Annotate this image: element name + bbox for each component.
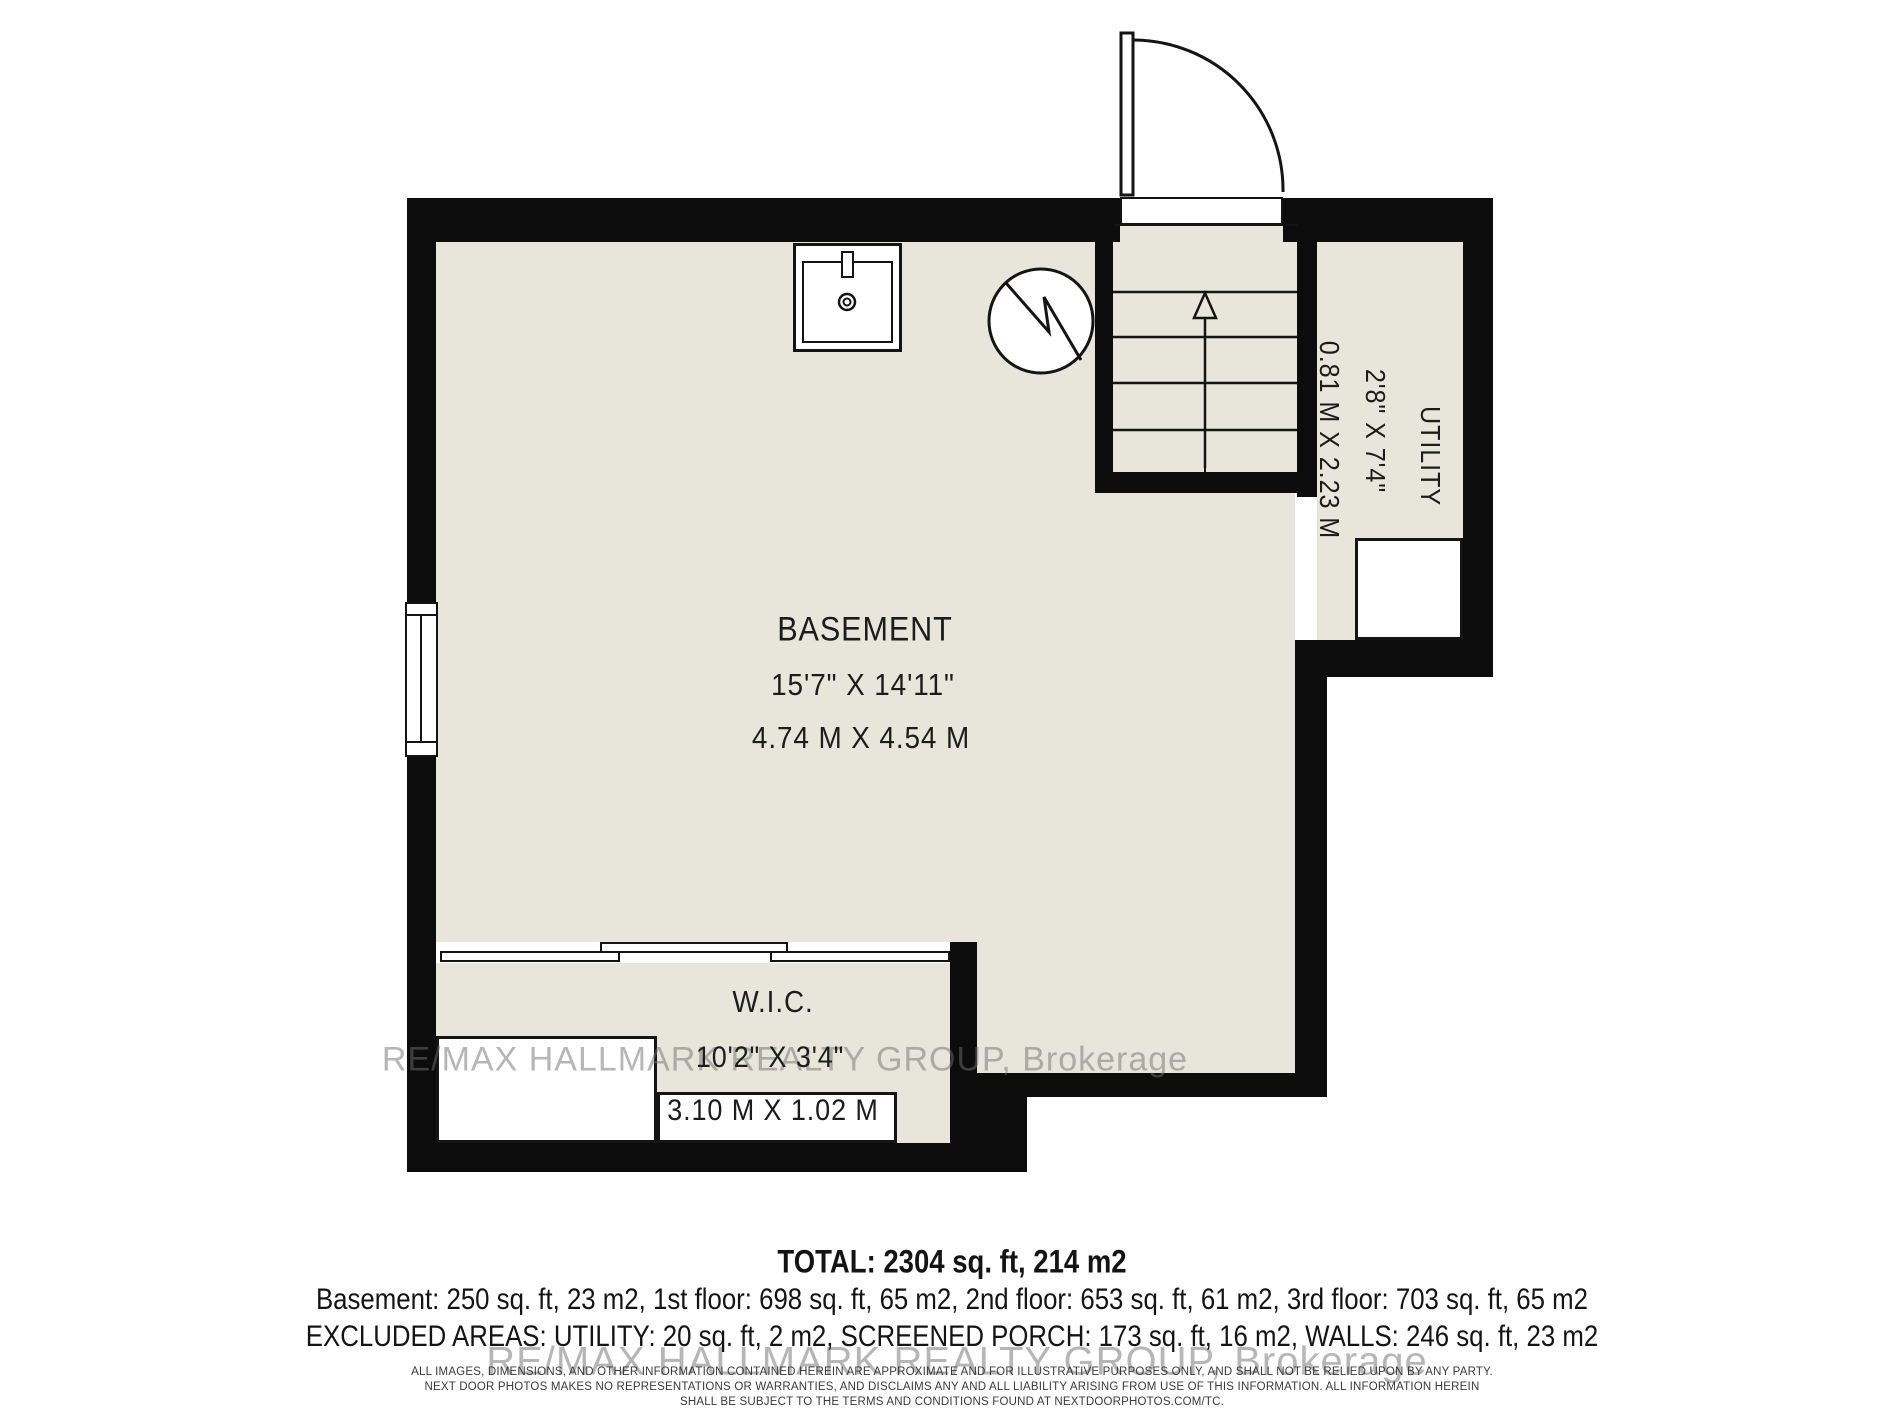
left-wall-lower xyxy=(407,757,436,1143)
stair-bottom-wall xyxy=(1095,472,1317,493)
stair-left-wall xyxy=(1095,242,1113,493)
excluded-areas-line: EXCLUDED AREAS: UTILITY: 20 sq. ft, 2 m2… xyxy=(306,1320,1598,1354)
utility-room-label: UTILITY xyxy=(1414,406,1446,506)
utility-dimensions-imperial: 2'8" X 7'4" xyxy=(1359,369,1391,493)
entry-door-leaf xyxy=(1121,33,1133,195)
wic-dimensions-imperial: 10'2" X 3'4" xyxy=(696,1041,844,1075)
wic-room-label: W.I.C. xyxy=(732,984,813,1020)
bottom-step-wall xyxy=(950,1097,1027,1143)
stairwell-floor-area xyxy=(1113,223,1297,472)
right-wall xyxy=(1295,677,1327,1073)
utility-right-wall xyxy=(1463,198,1493,677)
utility-equipment-box xyxy=(1355,538,1463,640)
entry-door-swing-arc-icon xyxy=(1133,40,1283,192)
sink-faucet-icon xyxy=(841,251,854,278)
disclaimer-line-2: NEXT DOOR PHOTOS MAKES NO REPRESENTATION… xyxy=(425,1381,1480,1393)
utility-dimensions-metric: 0.81 M X 2.23 M xyxy=(1313,341,1345,539)
floor-areas-line: Basement: 250 sq. ft, 23 m2, 1st floor: … xyxy=(316,1283,1588,1317)
basement-dimensions-imperial: 15'7" X 14'11" xyxy=(771,667,955,703)
basement-dimensions-metric: 4.74 M X 4.54 M xyxy=(752,720,970,756)
left-window xyxy=(405,602,438,757)
entry-door-threshold xyxy=(1120,197,1283,225)
basement-floor-area xyxy=(436,242,1095,942)
top-wall-left-segment xyxy=(407,198,1120,242)
top-wall-right-segment xyxy=(1283,198,1493,242)
basement-floor-area-right xyxy=(1095,493,1295,942)
sliding-door-panel-middle xyxy=(600,942,788,953)
disclaimer-line-1: ALL IMAGES, DIMENSIONS, AND OTHER INFORM… xyxy=(411,1366,1493,1378)
sliding-door-panel-left xyxy=(440,951,620,962)
floor-plan-page: RE/MAX HALLMARK REALTY GROUP, Brokerage … xyxy=(0,0,1900,1425)
sliding-door-panel-right xyxy=(770,951,950,962)
basement-room-label: BASEMENT xyxy=(777,611,953,650)
wic-dimensions-metric: 3.10 M X 1.02 M xyxy=(667,1094,879,1128)
total-area-line: TOTAL: 2304 sq. ft, 214 m2 xyxy=(777,1244,1126,1281)
disclaimer-line-3: SHALL BE SUBJECT TO THE TERMS AND CONDIT… xyxy=(680,1396,1224,1408)
left-wall-upper xyxy=(407,242,436,602)
wic-bottom-wall xyxy=(407,1143,1027,1172)
